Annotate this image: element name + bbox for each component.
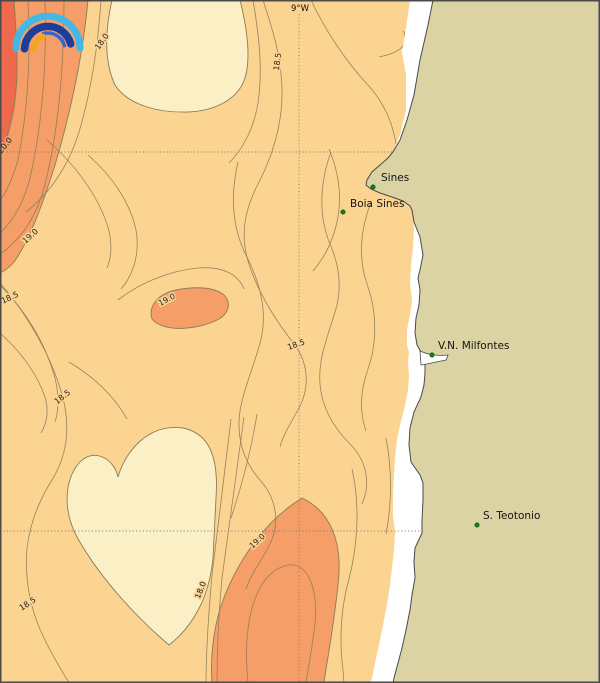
map-canvas: 18.0 18.5 20.0 19.0 18.5 19.0 18.5 18.5 … [0,0,600,683]
place-label-s-teotonio: S. Teotonio [483,510,540,522]
meridian-label: 9°W [291,4,310,14]
place-label-boia-sines: Boia Sines [350,198,404,210]
place-marker-s-teotonio [475,523,479,527]
place-label-sines: Sines [381,172,409,184]
cool-band-top [107,0,248,112]
place-marker-boia-sines [341,210,345,214]
place-marker-vn-milfontes [430,353,434,357]
place-label-vn-milfontes: V.N. Milfontes [438,340,509,352]
place-marker-sines [371,185,375,189]
sst-contour-map: 18.0 18.5 20.0 19.0 18.5 19.0 18.5 18.5 … [0,0,600,683]
